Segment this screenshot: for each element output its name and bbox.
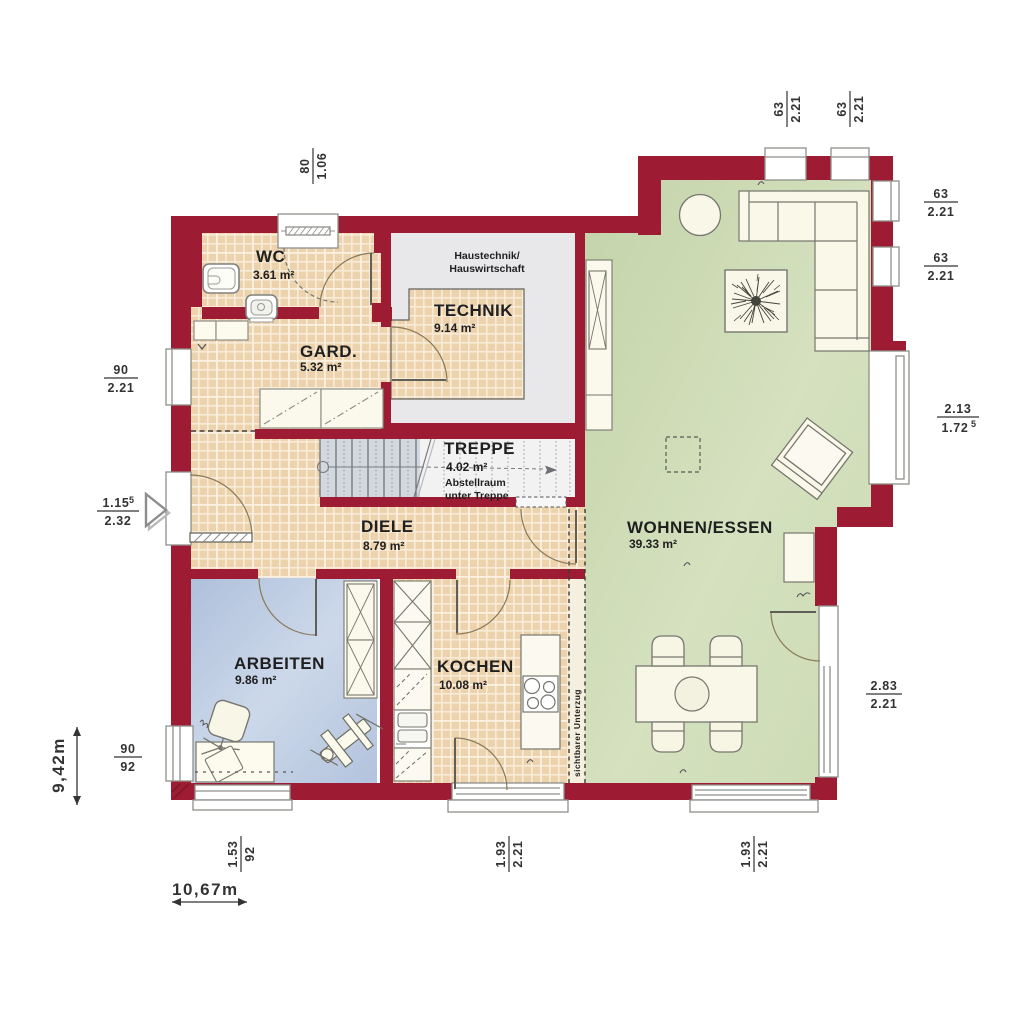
svg-text:TREPPE: TREPPE bbox=[444, 439, 515, 458]
svg-text:80: 80 bbox=[298, 158, 312, 173]
svg-text:63: 63 bbox=[933, 251, 948, 265]
svg-text:5: 5 bbox=[129, 495, 134, 505]
svg-text:KOCHEN: KOCHEN bbox=[437, 657, 514, 676]
svg-text:9.86 m²: 9.86 m² bbox=[235, 673, 276, 687]
svg-text:GARD.: GARD. bbox=[300, 342, 357, 361]
svg-text:10,67m: 10,67m bbox=[172, 880, 239, 899]
svg-text:2.21: 2.21 bbox=[852, 95, 866, 122]
svg-text:2.83: 2.83 bbox=[870, 679, 897, 693]
svg-text:1.53: 1.53 bbox=[226, 840, 240, 867]
svg-text:sichtbarer Unterzug: sichtbarer Unterzug bbox=[572, 689, 582, 777]
svg-text:10.08 m²: 10.08 m² bbox=[439, 678, 487, 692]
svg-text:2.21: 2.21 bbox=[870, 697, 897, 711]
svg-text:Haustechnik/: Haustechnik/ bbox=[454, 250, 519, 262]
svg-text:2.32: 2.32 bbox=[104, 514, 131, 528]
svg-text:1.06: 1.06 bbox=[315, 152, 329, 179]
svg-text:ARBEITEN: ARBEITEN bbox=[234, 654, 325, 673]
svg-text:2.21: 2.21 bbox=[511, 840, 525, 867]
svg-text:63: 63 bbox=[835, 101, 849, 116]
svg-text:8.79 m²: 8.79 m² bbox=[363, 539, 404, 553]
svg-text:2.21: 2.21 bbox=[107, 381, 134, 395]
svg-text:92: 92 bbox=[120, 760, 135, 774]
svg-text:1.15: 1.15 bbox=[102, 496, 129, 510]
svg-text:WOHNEN/ESSEN: WOHNEN/ESSEN bbox=[627, 518, 773, 537]
svg-text:Hauswirtschaft: Hauswirtschaft bbox=[449, 263, 525, 275]
svg-text:3.61 m²: 3.61 m² bbox=[253, 268, 294, 282]
svg-text:TECHNIK: TECHNIK bbox=[434, 301, 513, 320]
svg-text:90: 90 bbox=[113, 363, 128, 377]
svg-text:90: 90 bbox=[120, 742, 135, 756]
svg-text:DIELE: DIELE bbox=[361, 517, 414, 536]
svg-text:2.13: 2.13 bbox=[944, 402, 971, 416]
svg-text:2.21: 2.21 bbox=[789, 95, 803, 122]
svg-text:4.02 m²: 4.02 m² bbox=[446, 460, 487, 474]
svg-text:5: 5 bbox=[971, 419, 976, 429]
svg-text:unter Treppe: unter Treppe bbox=[445, 490, 509, 502]
svg-text:2.21: 2.21 bbox=[927, 205, 954, 219]
svg-text:63: 63 bbox=[933, 187, 948, 201]
svg-text:92: 92 bbox=[243, 846, 257, 861]
svg-text:9.14 m²: 9.14 m² bbox=[434, 321, 475, 335]
svg-text:2.21: 2.21 bbox=[756, 840, 770, 867]
svg-text:1.93: 1.93 bbox=[739, 840, 753, 867]
svg-text:63: 63 bbox=[772, 101, 786, 116]
svg-text:1.93: 1.93 bbox=[494, 840, 508, 867]
svg-text:5.32 m²: 5.32 m² bbox=[300, 360, 341, 374]
svg-text:39.33 m²: 39.33 m² bbox=[629, 537, 677, 551]
svg-text:Abstellraum: Abstellraum bbox=[445, 477, 506, 489]
svg-text:9,42m: 9,42m bbox=[49, 737, 68, 793]
svg-text:WC: WC bbox=[256, 247, 285, 266]
svg-text:2.21: 2.21 bbox=[927, 269, 954, 283]
svg-text:1.72: 1.72 bbox=[941, 421, 968, 435]
